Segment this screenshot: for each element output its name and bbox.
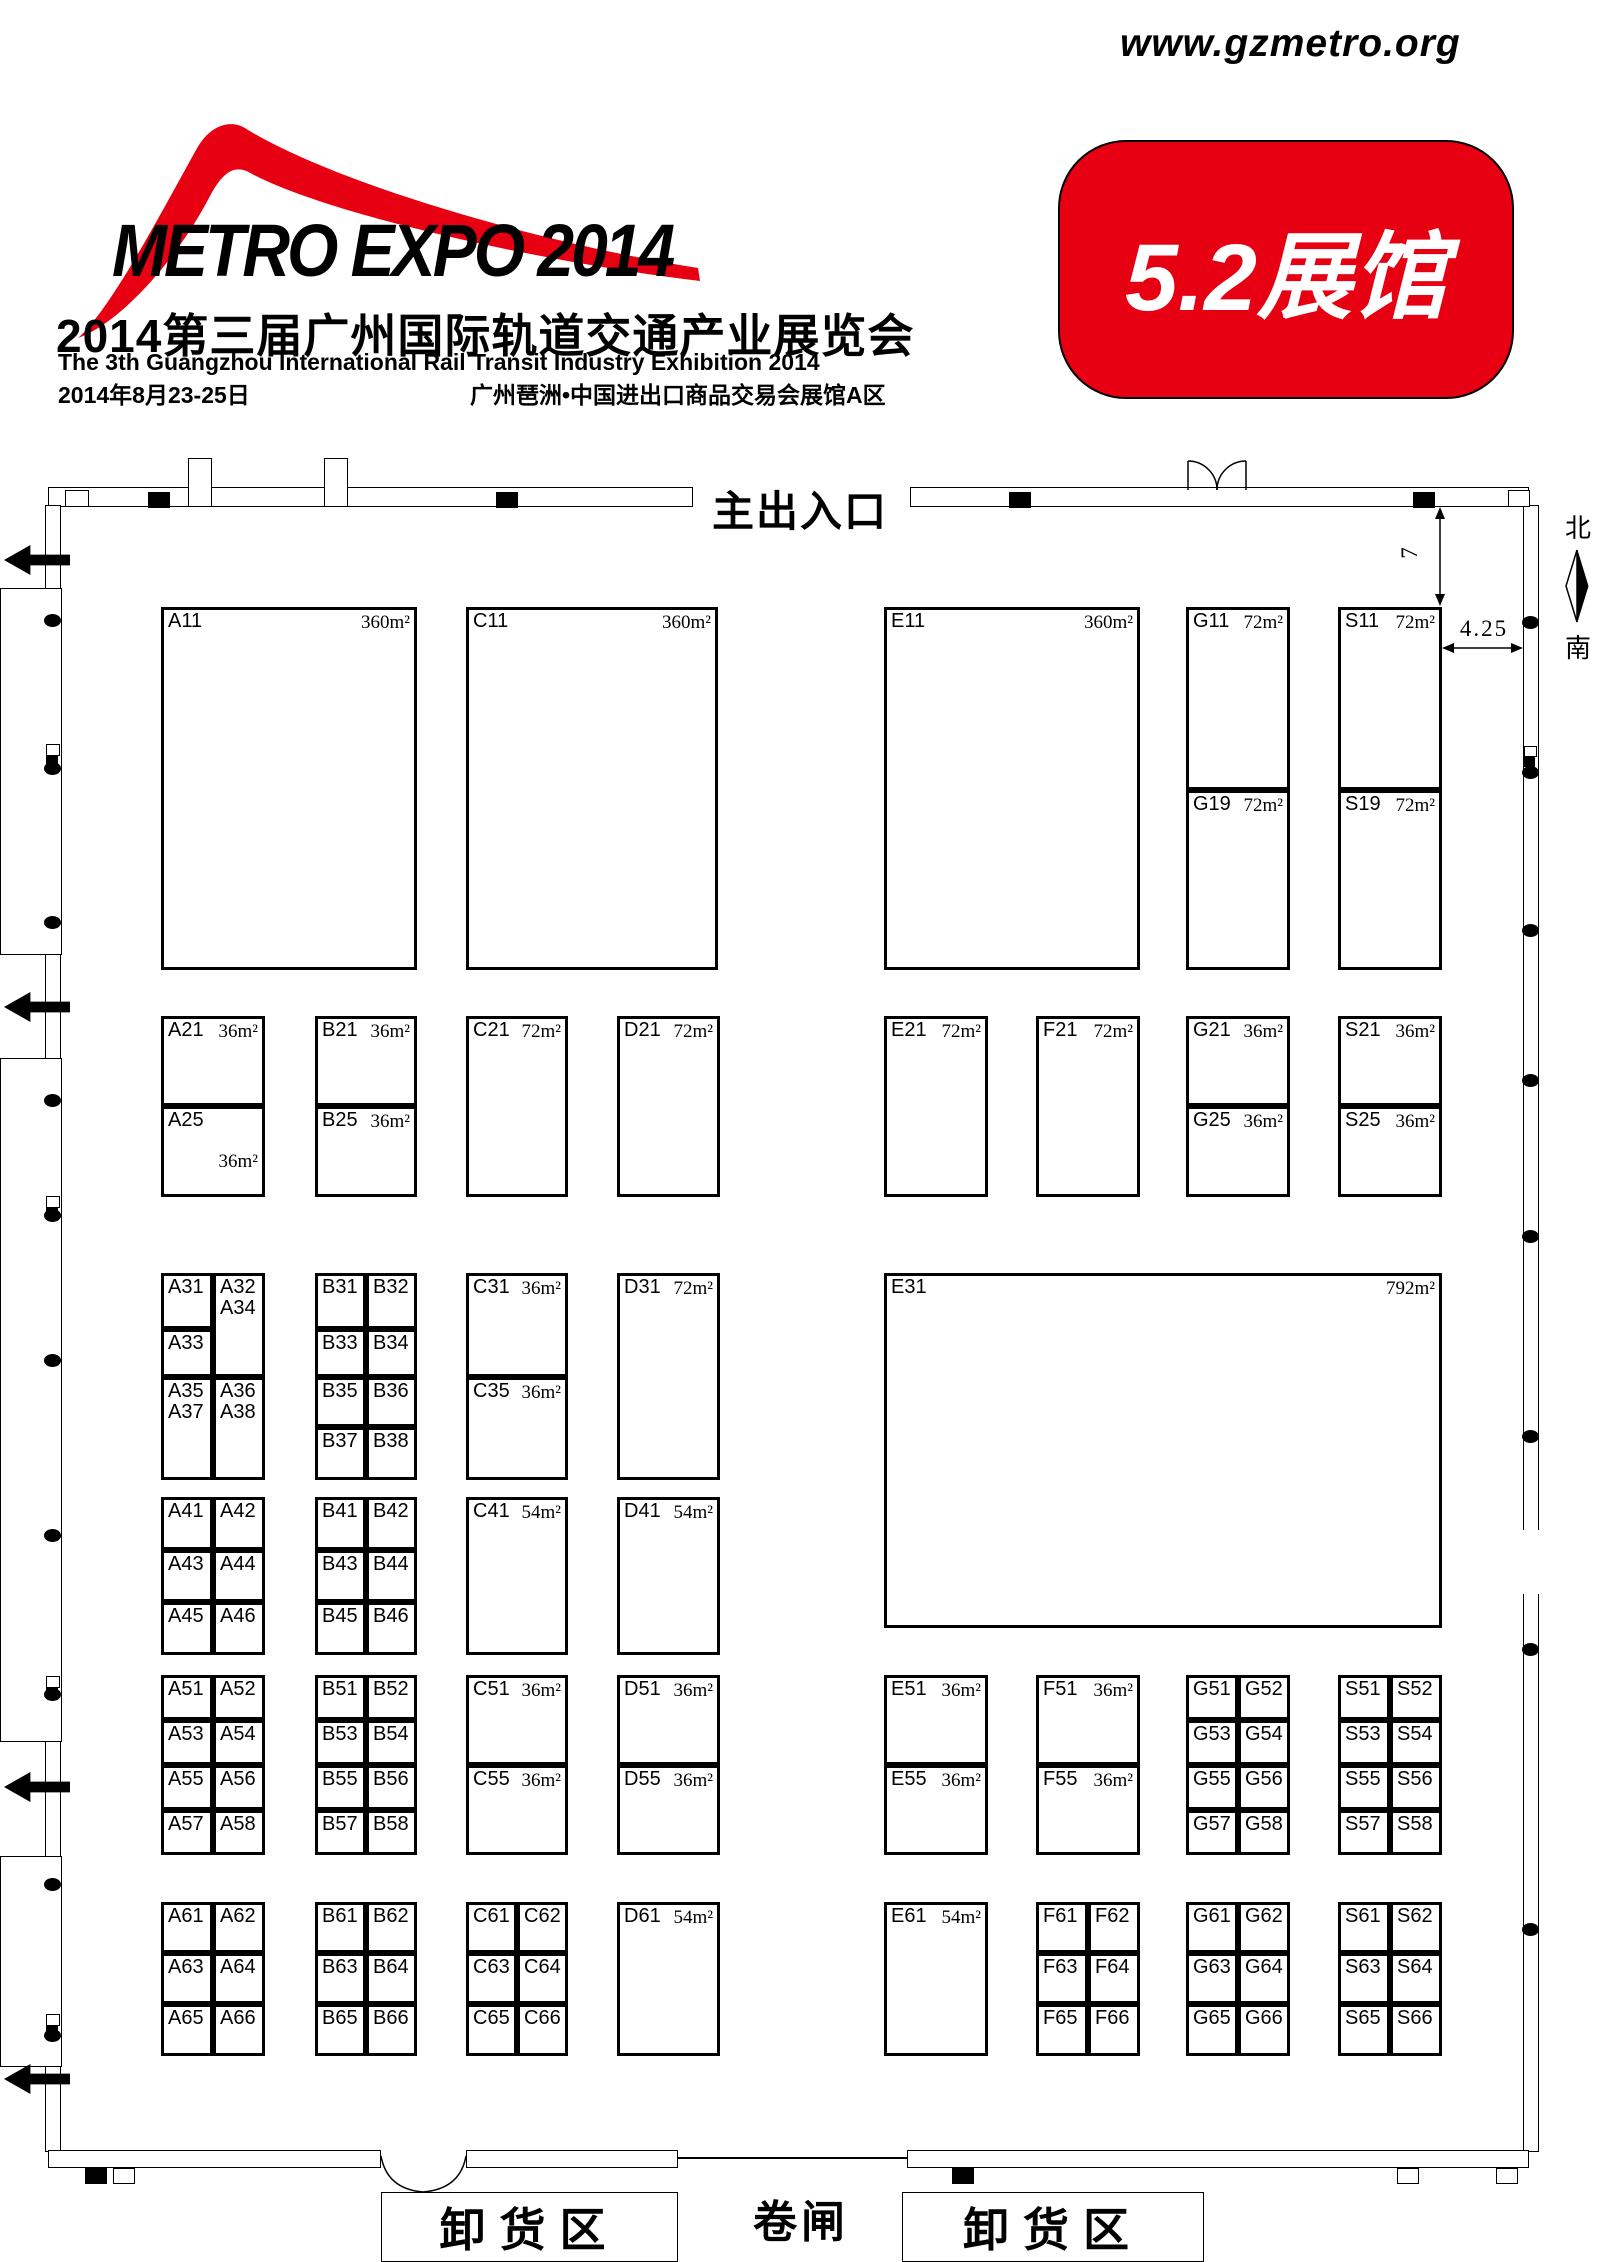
booth-G66[interactable]: G66 — [1238, 2004, 1290, 2056]
booth-area: 54m² — [674, 1502, 713, 1524]
booth-id: B64 — [373, 1957, 409, 1978]
booth-id: A44 — [220, 1554, 256, 1575]
booth-area: 54m² — [942, 1907, 981, 1929]
booth-S53[interactable]: S53 — [1338, 1720, 1390, 1765]
booth-area: 36m² — [1396, 1111, 1435, 1133]
booth-B61[interactable]: B61 — [315, 1902, 366, 1953]
booth-id: C41 — [473, 1501, 510, 1522]
booth-area: 36m² — [674, 1770, 713, 1792]
wall-dot-icon — [1522, 1430, 1539, 1443]
booth-area: 72m² — [1396, 795, 1435, 817]
wall-dot-icon — [1522, 1643, 1539, 1656]
booth-id: B62 — [373, 1906, 409, 1927]
wall-mark-icon — [46, 1208, 58, 1218]
booth-B64[interactable]: B64 — [366, 1953, 417, 2004]
booth-id: A43 — [168, 1554, 204, 1575]
booth-B44[interactable]: B44 — [366, 1550, 417, 1602]
booth-C51[interactable]: C5136m² — [466, 1675, 568, 1765]
booth-A51[interactable]: A51 — [161, 1675, 213, 1720]
compass-south-label: 南 — [1556, 628, 1600, 665]
booth-A64[interactable]: A64 — [213, 1953, 265, 2004]
booth-id: G66 — [1245, 2008, 1283, 2029]
booth-id: G57 — [1193, 1814, 1231, 1835]
booth-id: G21 — [1193, 1020, 1231, 1041]
booth-B42[interactable]: B42 — [366, 1497, 417, 1550]
booth-G61[interactable]: G61 — [1186, 1902, 1238, 1953]
booth-id: S51 — [1345, 1679, 1381, 1700]
booth-G19[interactable]: G1972m² — [1186, 790, 1290, 970]
booth-id: S55 — [1345, 1769, 1381, 1790]
compass-needle-icon — [1566, 550, 1588, 622]
booth-id: A46 — [220, 1606, 256, 1627]
booth-area: 360m² — [662, 612, 711, 634]
booth-A55[interactable]: A55 — [161, 1765, 213, 1810]
booth-id: F61 — [1043, 1906, 1077, 1927]
booth-C61[interactable]: C61 — [466, 1902, 517, 1953]
booth-id: B56 — [373, 1769, 409, 1790]
booth-A35[interactable]: A35 A37 — [161, 1377, 213, 1480]
booth-S55[interactable]: S55 — [1338, 1765, 1390, 1810]
wall-dot-icon — [44, 614, 61, 627]
wall-mark-icon — [1524, 757, 1535, 767]
booth-G54[interactable]: G54 — [1238, 1720, 1290, 1765]
booth-id: B63 — [322, 1957, 358, 1978]
booth-G51[interactable]: G51 — [1186, 1675, 1238, 1720]
wall-mark-icon — [46, 756, 58, 766]
booth-F55[interactable]: F5536m² — [1036, 1765, 1140, 1855]
booth-id: S52 — [1397, 1679, 1433, 1700]
booth-S21[interactable]: S2136m² — [1338, 1016, 1442, 1106]
booth-id: S19 — [1345, 794, 1381, 815]
booth-id: S62 — [1397, 1906, 1433, 1927]
wall-dot-icon — [44, 1094, 61, 1107]
booth-id: A61 — [168, 1906, 204, 1927]
booth-A21[interactable]: A2136m² — [161, 1016, 265, 1106]
booth-id: S63 — [1345, 1957, 1381, 1978]
unloading-area-left: 卸货区 — [381, 2192, 678, 2262]
wall-tab-icon — [188, 458, 212, 507]
booth-A54[interactable]: A54 — [213, 1720, 265, 1765]
wall-mark-icon — [1413, 492, 1435, 508]
booth-A43[interactable]: A43 — [161, 1550, 213, 1602]
wall-mark-icon — [148, 492, 170, 508]
booth-B53[interactable]: B53 — [315, 1720, 366, 1765]
booth-id: G55 — [1193, 1769, 1231, 1790]
booth-A46[interactable]: A46 — [213, 1602, 265, 1655]
booth-S54[interactable]: S54 — [1390, 1720, 1442, 1765]
booth-id: G19 — [1193, 794, 1231, 815]
booth-id: B41 — [322, 1501, 358, 1522]
booth-E11[interactable]: E11360m² — [884, 607, 1140, 970]
booth-id: A32 A34 — [220, 1277, 256, 1319]
unloading-area-left-label: 卸货区 — [440, 2194, 620, 2260]
booth-S19[interactable]: S1972m² — [1338, 790, 1442, 970]
booth-C55[interactable]: C5536m² — [466, 1765, 568, 1855]
booth-A61[interactable]: A61 — [161, 1902, 213, 1953]
booth-area: 72m² — [522, 1021, 561, 1043]
booth-id: F66 — [1095, 2008, 1129, 2029]
booth-G62[interactable]: G62 — [1238, 1902, 1290, 1953]
booth-area: 72m² — [674, 1278, 713, 1300]
wall-mark-icon — [952, 2168, 974, 2184]
booth-F21[interactable]: F2172m² — [1036, 1016, 1140, 1197]
booth-area: 36m² — [219, 1151, 258, 1173]
booth-area: 36m² — [522, 1680, 561, 1702]
booth-id: A35 A37 — [168, 1381, 204, 1423]
booth-id: A63 — [168, 1957, 204, 1978]
booth-area: 72m² — [674, 1021, 713, 1043]
booth-S63[interactable]: S63 — [1338, 1953, 1390, 2004]
booth-id: B44 — [373, 1554, 409, 1575]
booth-id: B51 — [322, 1679, 358, 1700]
booth-area: 72m² — [1244, 795, 1283, 817]
booth-id: G25 — [1193, 1110, 1231, 1131]
wall-tab-icon — [1508, 490, 1530, 507]
booth-A53[interactable]: A53 — [161, 1720, 213, 1765]
booth-C62[interactable]: C62 — [517, 1902, 568, 1953]
booth-B51[interactable]: B51 — [315, 1675, 366, 1720]
booth-id: G65 — [1193, 2008, 1231, 2029]
booth-id: D41 — [624, 1501, 661, 1522]
booth-id: B58 — [373, 1814, 409, 1835]
booth-S66[interactable]: S66 — [1390, 2004, 1442, 2056]
booth-area: 36m² — [371, 1111, 410, 1133]
booth-S65[interactable]: S65 — [1338, 2004, 1390, 2056]
booth-area: 360m² — [361, 612, 410, 634]
booth-A57[interactable]: A57 — [161, 1810, 213, 1855]
dimension-425-label: 4.25 — [1444, 616, 1524, 642]
booth-B32[interactable]: B32 — [366, 1273, 417, 1329]
booth-B36[interactable]: B36 — [366, 1377, 417, 1427]
booth-S51[interactable]: S51 — [1338, 1675, 1390, 1720]
booth-B34[interactable]: B34 — [366, 1329, 417, 1377]
booth-id: A31 — [168, 1277, 204, 1298]
booth-G11[interactable]: G1172m² — [1186, 607, 1290, 790]
booth-id: S65 — [1345, 2008, 1381, 2029]
booth-C11[interactable]: C11360m² — [466, 607, 718, 970]
booth-A42[interactable]: A42 — [213, 1497, 265, 1550]
booth-id: G52 — [1245, 1679, 1283, 1700]
wall-top-left — [48, 487, 693, 507]
booth-D51[interactable]: D5136m² — [617, 1675, 720, 1765]
right-wall-door-gap — [1520, 1530, 1542, 1594]
booth-C63[interactable]: C63 — [466, 1953, 517, 2004]
booth-E55[interactable]: E5536m² — [884, 1765, 988, 1855]
booth-id: A41 — [168, 1501, 204, 1522]
rolling-gate-line — [678, 2157, 907, 2159]
booth-B66[interactable]: B66 — [366, 2004, 417, 2056]
booth-B45[interactable]: B45 — [315, 1602, 366, 1655]
unloading-area-right-label: 卸货区 — [963, 2194, 1143, 2260]
booth-B31[interactable]: B31 — [315, 1273, 366, 1329]
booth-B54[interactable]: B54 — [366, 1720, 417, 1765]
booth-id: C65 — [473, 2008, 510, 2029]
booth-id: E11 — [891, 611, 925, 632]
booth-id: B37 — [322, 1431, 358, 1452]
booth-B41[interactable]: B41 — [315, 1497, 366, 1550]
booth-id: A62 — [220, 1906, 256, 1927]
booth-id: E31 — [891, 1277, 927, 1298]
booth-id: G56 — [1245, 1769, 1283, 1790]
booth-id: A66 — [220, 2008, 256, 2029]
booth-id: G61 — [1193, 1906, 1231, 1927]
wall-bottom-3 — [907, 2150, 1529, 2168]
booth-area: 36m² — [1396, 1021, 1435, 1043]
booth-A11[interactable]: A11360m² — [161, 607, 417, 970]
booth-G25[interactable]: G2536m² — [1186, 1106, 1290, 1197]
wall-mark-icon — [46, 2026, 58, 2036]
booth-id: B65 — [322, 2008, 358, 2029]
booth-F64[interactable]: F64 — [1088, 1953, 1140, 2004]
booth-A58[interactable]: A58 — [213, 1810, 265, 1855]
booth-G65[interactable]: G65 — [1186, 2004, 1238, 2056]
booth-id: B35 — [322, 1381, 358, 1402]
booth-C21[interactable]: C2172m² — [466, 1016, 568, 1197]
booth-F65[interactable]: F65 — [1036, 2004, 1088, 2056]
booth-id: E21 — [891, 1020, 927, 1041]
booth-id: D31 — [624, 1277, 661, 1298]
booth-id: D21 — [624, 1020, 661, 1041]
booth-id: S54 — [1397, 1724, 1433, 1745]
booth-id: A42 — [220, 1501, 256, 1522]
wall-mark-icon — [1524, 746, 1537, 757]
booth-C65[interactable]: C65 — [466, 2004, 517, 2056]
booth-id: C51 — [473, 1679, 510, 1700]
booth-E61[interactable]: E6154m² — [884, 1902, 988, 2056]
booth-id: A25 — [168, 1110, 204, 1131]
booth-F66[interactable]: F66 — [1088, 2004, 1140, 2056]
booth-B57[interactable]: B57 — [315, 1810, 366, 1855]
booth-id: S64 — [1397, 1957, 1433, 1978]
booth-id: C35 — [473, 1381, 510, 1402]
booth-id: B43 — [322, 1554, 358, 1575]
booth-B21[interactable]: B2136m² — [315, 1016, 417, 1106]
booth-A41[interactable]: A41 — [161, 1497, 213, 1550]
wall-mark-icon — [46, 1688, 58, 1698]
booth-G63[interactable]: G63 — [1186, 1953, 1238, 2004]
booth-B63[interactable]: B63 — [315, 1953, 366, 2004]
booth-area: 54m² — [522, 1502, 561, 1524]
booth-S57[interactable]: S57 — [1338, 1810, 1390, 1855]
booth-G55[interactable]: G55 — [1186, 1765, 1238, 1810]
booth-id: A58 — [220, 1814, 256, 1835]
booth-area: 72m² — [1396, 612, 1435, 634]
exhibition-floorplan-page: METRO EXPO 2014 2014第三届广州国际轨道交通产业展览会 The… — [0, 0, 1600, 2262]
booth-G53[interactable]: G53 — [1186, 1720, 1238, 1765]
booth-D61[interactable]: D6154m² — [617, 1902, 720, 2056]
booth-area: 36m² — [1244, 1021, 1283, 1043]
booth-id: F21 — [1043, 1020, 1077, 1041]
floor-plan: 主出入口 北 南 7 4.25 卸货区 卷闸 卸货区 A11360m²C1136… — [0, 0, 1600, 2262]
booth-id: C55 — [473, 1769, 510, 1790]
booth-id: S53 — [1345, 1724, 1381, 1745]
booth-B43[interactable]: B43 — [315, 1550, 366, 1602]
dimension-7-label: 7 — [1397, 547, 1423, 559]
booth-E21[interactable]: E2172m² — [884, 1016, 988, 1197]
booth-area: 792m² — [1386, 1278, 1435, 1300]
wall-top-right — [910, 487, 1529, 507]
wall-dot-icon — [1522, 766, 1539, 779]
booth-id: E51 — [891, 1679, 927, 1700]
booth-C31[interactable]: C3136m² — [466, 1273, 568, 1377]
booth-E51[interactable]: E5136m² — [884, 1675, 988, 1765]
wall-tab-icon — [324, 458, 348, 507]
booth-D41[interactable]: D4154m² — [617, 1497, 720, 1655]
booth-A33[interactable]: A33 — [161, 1329, 213, 1377]
booth-id: B57 — [322, 1814, 358, 1835]
booth-id: B45 — [322, 1606, 358, 1627]
booth-A31[interactable]: A31 — [161, 1273, 213, 1329]
wall-mark-icon — [1009, 492, 1031, 508]
wall-tab-icon — [1397, 2168, 1419, 2184]
booth-D21[interactable]: D2172m² — [617, 1016, 720, 1197]
unload-door-icon — [381, 2156, 466, 2192]
booth-id: C62 — [524, 1906, 561, 1927]
booth-id: B38 — [373, 1431, 409, 1452]
booth-F63[interactable]: F63 — [1036, 1953, 1088, 2004]
booth-id: C63 — [473, 1957, 510, 1978]
booth-B37[interactable]: B37 — [315, 1427, 366, 1480]
booth-D55[interactable]: D5536m² — [617, 1765, 720, 1855]
booth-G56[interactable]: G56 — [1238, 1765, 1290, 1810]
wall-niche — [0, 1058, 62, 1742]
booth-C64[interactable]: C64 — [517, 1953, 568, 2004]
booth-id: A55 — [168, 1769, 204, 1790]
booth-id: A54 — [220, 1724, 256, 1745]
booth-C66[interactable]: C66 — [517, 2004, 568, 2056]
booth-id: S61 — [1345, 1906, 1381, 1927]
booth-B62[interactable]: B62 — [366, 1902, 417, 1953]
wall-mark-icon — [496, 492, 518, 508]
wall-mark-icon — [46, 2014, 60, 2026]
booth-B55[interactable]: B55 — [315, 1765, 366, 1810]
booth-id: F65 — [1043, 2008, 1077, 2029]
booth-A36[interactable]: A36 A38 — [213, 1377, 265, 1480]
booth-id: B53 — [322, 1724, 358, 1745]
booth-A65[interactable]: A65 — [161, 2004, 213, 2056]
booth-id: A33 — [168, 1333, 204, 1354]
booth-G57[interactable]: G57 — [1186, 1810, 1238, 1855]
booth-G21[interactable]: G2136m² — [1186, 1016, 1290, 1106]
dimension-horizontal — [1442, 643, 1523, 653]
booth-area: 72m² — [942, 1021, 981, 1043]
booth-id: B54 — [373, 1724, 409, 1745]
booth-F61[interactable]: F61 — [1036, 1902, 1088, 1953]
booth-G52[interactable]: G52 — [1238, 1675, 1290, 1720]
wall-mark-icon — [46, 744, 60, 756]
booth-id: G63 — [1193, 1957, 1231, 1978]
booth-id: A64 — [220, 1957, 256, 1978]
booth-B25[interactable]: B2536m² — [315, 1106, 417, 1197]
booth-id: F55 — [1043, 1769, 1077, 1790]
booth-G58[interactable]: G58 — [1238, 1810, 1290, 1855]
booth-area: 72m² — [1244, 612, 1283, 634]
booth-S61[interactable]: S61 — [1338, 1902, 1390, 1953]
booth-A44[interactable]: A44 — [213, 1550, 265, 1602]
booth-area: 36m² — [219, 1021, 258, 1043]
booth-A52[interactable]: A52 — [213, 1675, 265, 1720]
booth-B56[interactable]: B56 — [366, 1765, 417, 1810]
booth-B33[interactable]: B33 — [315, 1329, 366, 1377]
booth-id: B36 — [373, 1381, 409, 1402]
booth-A63[interactable]: A63 — [161, 1953, 213, 2004]
booth-id: B31 — [322, 1277, 358, 1298]
booth-C41[interactable]: C4154m² — [466, 1497, 568, 1655]
booth-area: 36m² — [371, 1021, 410, 1043]
booth-id: G62 — [1245, 1906, 1283, 1927]
booth-id: S11 — [1345, 611, 1379, 632]
booth-S56[interactable]: S56 — [1390, 1765, 1442, 1810]
booth-id: A45 — [168, 1606, 204, 1627]
booth-B52[interactable]: B52 — [366, 1675, 417, 1720]
booth-id: A11 — [168, 611, 202, 632]
booth-id: A53 — [168, 1724, 204, 1745]
booth-id: A57 — [168, 1814, 204, 1835]
booth-A45[interactable]: A45 — [161, 1602, 213, 1655]
booth-id: S66 — [1397, 2008, 1433, 2029]
booth-id: D61 — [624, 1906, 661, 1927]
booth-id: G51 — [1193, 1679, 1231, 1700]
booth-B38[interactable]: B38 — [366, 1427, 417, 1480]
booth-B46[interactable]: B46 — [366, 1602, 417, 1655]
booth-area: 36m² — [942, 1680, 981, 1702]
booth-S52[interactable]: S52 — [1390, 1675, 1442, 1720]
booth-S11[interactable]: S1172m² — [1338, 607, 1442, 790]
booth-S58[interactable]: S58 — [1390, 1810, 1442, 1855]
booth-A25[interactable]: A2536m² — [161, 1106, 265, 1197]
booth-A62[interactable]: A62 — [213, 1902, 265, 1953]
booth-id: E61 — [891, 1906, 927, 1927]
booth-id: C11 — [473, 611, 508, 632]
booth-id: B66 — [373, 2008, 409, 2029]
booth-area: 36m² — [1244, 1111, 1283, 1133]
booth-B35[interactable]: B35 — [315, 1377, 366, 1427]
booth-id: B34 — [373, 1333, 409, 1354]
wall-dot-icon — [1522, 1230, 1539, 1243]
booth-A32[interactable]: A32 A34 — [213, 1273, 265, 1377]
wall-mark-icon — [46, 1676, 60, 1688]
booth-B58[interactable]: B58 — [366, 1810, 417, 1855]
booth-id: D55 — [624, 1769, 661, 1790]
booth-id: C21 — [473, 1020, 510, 1041]
booth-F51[interactable]: F5136m² — [1036, 1675, 1140, 1765]
booth-id: B21 — [322, 1020, 358, 1041]
booth-area: 36m² — [674, 1680, 713, 1702]
booth-id: A56 — [220, 1769, 256, 1790]
booth-E31[interactable]: E31792m² — [884, 1273, 1442, 1628]
wall-mark-icon — [46, 1196, 60, 1208]
booth-S25[interactable]: S2536m² — [1338, 1106, 1442, 1197]
booth-A66[interactable]: A66 — [213, 2004, 265, 2056]
booth-C35[interactable]: C3536m² — [466, 1377, 568, 1480]
booth-id: C64 — [524, 1957, 561, 1978]
booth-G64[interactable]: G64 — [1238, 1953, 1290, 2004]
booth-S64[interactable]: S64 — [1390, 1953, 1442, 2004]
booth-area: 36m² — [522, 1382, 561, 1404]
booth-id: B25 — [322, 1110, 358, 1131]
booth-S62[interactable]: S62 — [1390, 1902, 1442, 1953]
booth-F62[interactable]: F62 — [1088, 1902, 1140, 1953]
wall-dot-icon — [1522, 616, 1539, 629]
wall-dot-icon — [44, 1354, 61, 1367]
booth-D31[interactable]: D3172m² — [617, 1273, 720, 1480]
booth-A56[interactable]: A56 — [213, 1765, 265, 1810]
booth-id: S57 — [1345, 1814, 1381, 1835]
booth-B65[interactable]: B65 — [315, 2004, 366, 2056]
main-entrance-label: 主出入口 — [688, 478, 912, 539]
booth-area: 54m² — [674, 1907, 713, 1929]
wall-dot-icon — [1522, 1923, 1539, 1936]
